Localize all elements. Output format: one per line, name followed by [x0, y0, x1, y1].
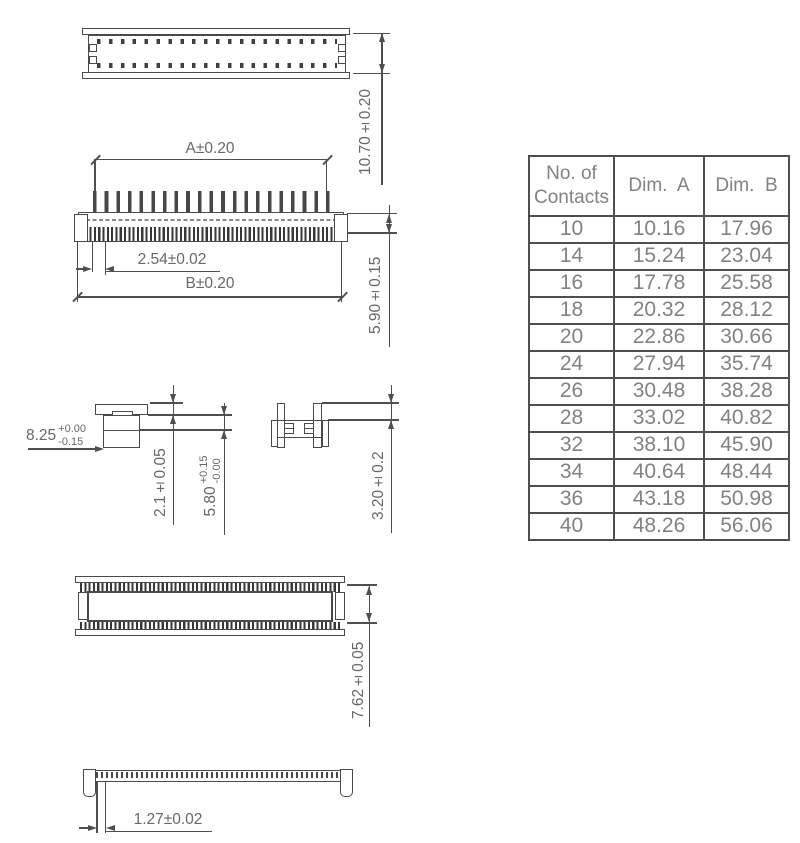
contacts-dimension-table: No. of Contacts Dim. A Dim. B 1010.1617.…	[528, 155, 790, 541]
dim-front-height-label: 5.90±0.15	[366, 243, 386, 347]
front-view-contact-comb	[81, 227, 341, 241]
dim-side-width-label: 8.25 +0.00 -0.15	[26, 423, 86, 448]
table-header: No. of Contacts Dim. A Dim. B	[529, 156, 789, 216]
top-view-flange-top	[82, 28, 350, 35]
table-row: 3643.1850.98	[529, 486, 789, 513]
dim-b-label: B±0.20	[160, 275, 260, 293]
table-row: 3440.6448.44	[529, 459, 789, 486]
dim-mated-height-label: 5.80 +0.15 -0.00	[192, 438, 230, 534]
extension-line	[150, 402, 183, 403]
arrowhead	[386, 224, 392, 233]
extension-line	[140, 429, 232, 430]
arrowhead	[388, 420, 394, 429]
header-dim-a: Dim. A	[614, 156, 704, 216]
header-dim-b: Dim. B	[704, 156, 789, 216]
front-view-end-cap-left	[74, 214, 88, 242]
rear-view-latch-right	[335, 592, 345, 620]
arrowhead	[106, 825, 115, 831]
table-row: 2630.4838.28	[529, 378, 789, 405]
front-view-end-cap-right	[334, 214, 348, 242]
table-row: 2427.9435.74	[529, 351, 789, 378]
arrowhead	[386, 214, 392, 223]
dim-row-pitch-label: 1.27±0.02	[122, 811, 214, 829]
top-view-clip	[89, 56, 97, 64]
dimension-line	[106, 831, 212, 832]
rear-view-flange-bottom	[75, 629, 345, 636]
arrowhead	[95, 446, 104, 452]
dim-rear-height-label: 7.62±0.05	[349, 631, 369, 729]
arrowhead	[366, 586, 372, 595]
end-view-slot-divider	[304, 428, 313, 429]
table-row: 2833.0240.82	[529, 405, 789, 432]
drawing-canvas: 10.70±0.20 A±0.20 2.54±0.02 B±0.20	[0, 0, 800, 843]
extension-line	[148, 414, 232, 415]
dim-mated-height-value: 5.80	[202, 486, 220, 516]
top-view-clip	[338, 56, 346, 64]
top-view-clip	[338, 44, 346, 52]
front-view-contact-slots	[86, 219, 336, 221]
dim-a-label: A±0.20	[160, 140, 260, 158]
table-row: 1617.7825.58	[529, 270, 789, 297]
header-no-of-contacts: No. of Contacts	[529, 156, 614, 216]
table-row: 1415.2423.04	[529, 243, 789, 270]
end-view-slot-divider	[284, 428, 293, 429]
arrowhead	[221, 406, 227, 415]
end-view-flange-right	[322, 420, 329, 447]
dim-side-width-tolerance: +0.00 -0.15	[58, 423, 86, 448]
dimension-line	[381, 33, 382, 185]
arrowhead	[170, 415, 176, 424]
table-row: 1820.3228.12	[529, 297, 789, 324]
rear-view-body	[87, 591, 333, 622]
dim-pitch-label: 2.54±0.02	[122, 251, 222, 269]
top-view-clip	[89, 44, 97, 52]
table-row: 4048.2656.06	[529, 513, 789, 540]
dim-post-height-label: 3.20±0.2	[369, 438, 389, 533]
rear-view-latch-left	[78, 592, 88, 620]
rear-view-flange-top	[75, 576, 345, 583]
arrowhead	[388, 394, 394, 403]
top-view-contact-row-upper	[97, 39, 337, 44]
dimension-line	[105, 271, 220, 272]
top-view-contact-row-lower	[97, 63, 337, 68]
table-row: 1010.1617.96	[529, 216, 789, 243]
front-view-pins	[93, 191, 330, 212]
leader-line	[28, 448, 95, 449]
extension-line	[94, 159, 95, 192]
arrowhead	[379, 33, 385, 42]
dim-side-width-value: 8.25	[26, 427, 56, 445]
top-view-flange-bottom	[82, 72, 350, 79]
bottom-view-teeth	[91, 772, 346, 778]
arrowhead	[379, 64, 385, 73]
extension-line	[326, 159, 327, 192]
side-view-divider	[103, 430, 140, 431]
extension-line	[347, 584, 377, 585]
dim-cap-height-label: 2.1±0.05	[151, 437, 171, 529]
dimension-line	[391, 385, 392, 533]
dim-mated-height-tolerance: +0.15 -0.00	[198, 456, 223, 484]
dimension-line	[173, 385, 174, 525]
dimension-line	[77, 296, 342, 297]
table-row: 3238.1045.90	[529, 432, 789, 459]
dim-height-top-label: 10.70±0.20	[356, 80, 376, 185]
end-view-flange-left	[271, 420, 278, 447]
arrowhead	[88, 825, 97, 831]
arrowhead	[170, 394, 176, 403]
table-row: 2022.8630.66	[529, 324, 789, 351]
dimension-line	[95, 159, 327, 160]
arrowhead	[366, 613, 372, 622]
bottom-view-hook-left	[83, 769, 96, 797]
arrowhead	[83, 266, 92, 272]
extension-line	[341, 242, 342, 302]
bottom-view-hook-right	[340, 769, 353, 797]
dimension-line	[369, 585, 370, 727]
extension-line	[347, 622, 377, 623]
